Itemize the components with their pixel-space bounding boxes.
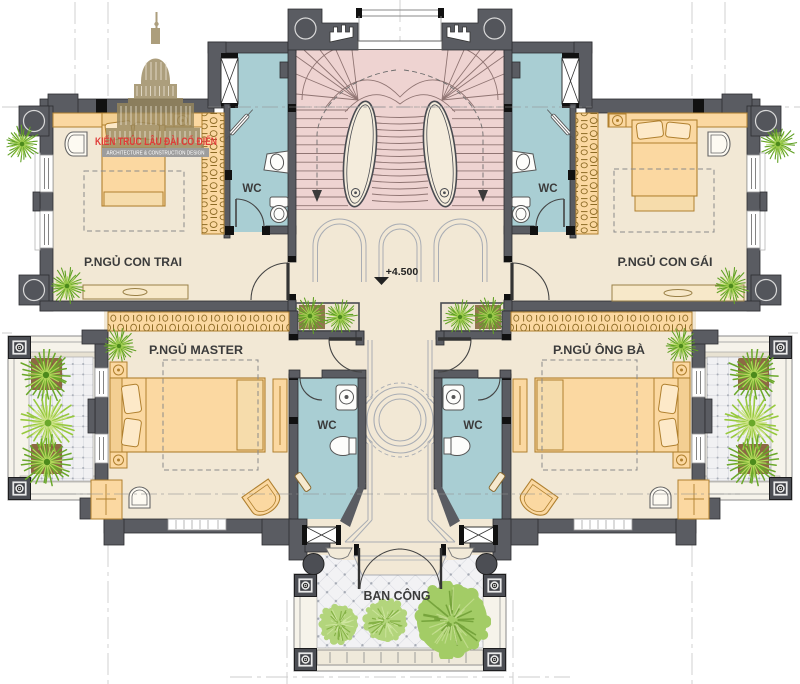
svg-text:BAN CÔNG: BAN CÔNG (364, 588, 431, 603)
svg-text:ARCHITECTURE & CONSTRUCTION DE: ARCHITECTURE & CONSTRUCTION DESIGN (107, 151, 205, 157)
svg-text:WC: WC (538, 183, 557, 195)
svg-text:P.NGỦ CON GÁI: P.NGỦ CON GÁI (618, 256, 713, 269)
svg-text:WC: WC (317, 420, 336, 432)
svg-text:WC: WC (242, 183, 261, 195)
svg-text:P.NGỦ ÔNG BÀ: P.NGỦ ÔNG BÀ (553, 344, 645, 357)
svg-text:KIẾN TRÚC LÂU ĐÀI CỔ ĐIỂN: KIẾN TRÚC LÂU ĐÀI CỔ ĐIỂN (95, 135, 217, 148)
svg-text:+4.500: +4.500 (386, 266, 419, 278)
svg-text:WC: WC (463, 420, 482, 432)
svg-text:P.NGỦ CON TRAI: P.NGỦ CON TRAI (84, 256, 182, 269)
svg-text:P.NGỦ MASTER: P.NGỦ MASTER (149, 344, 244, 357)
